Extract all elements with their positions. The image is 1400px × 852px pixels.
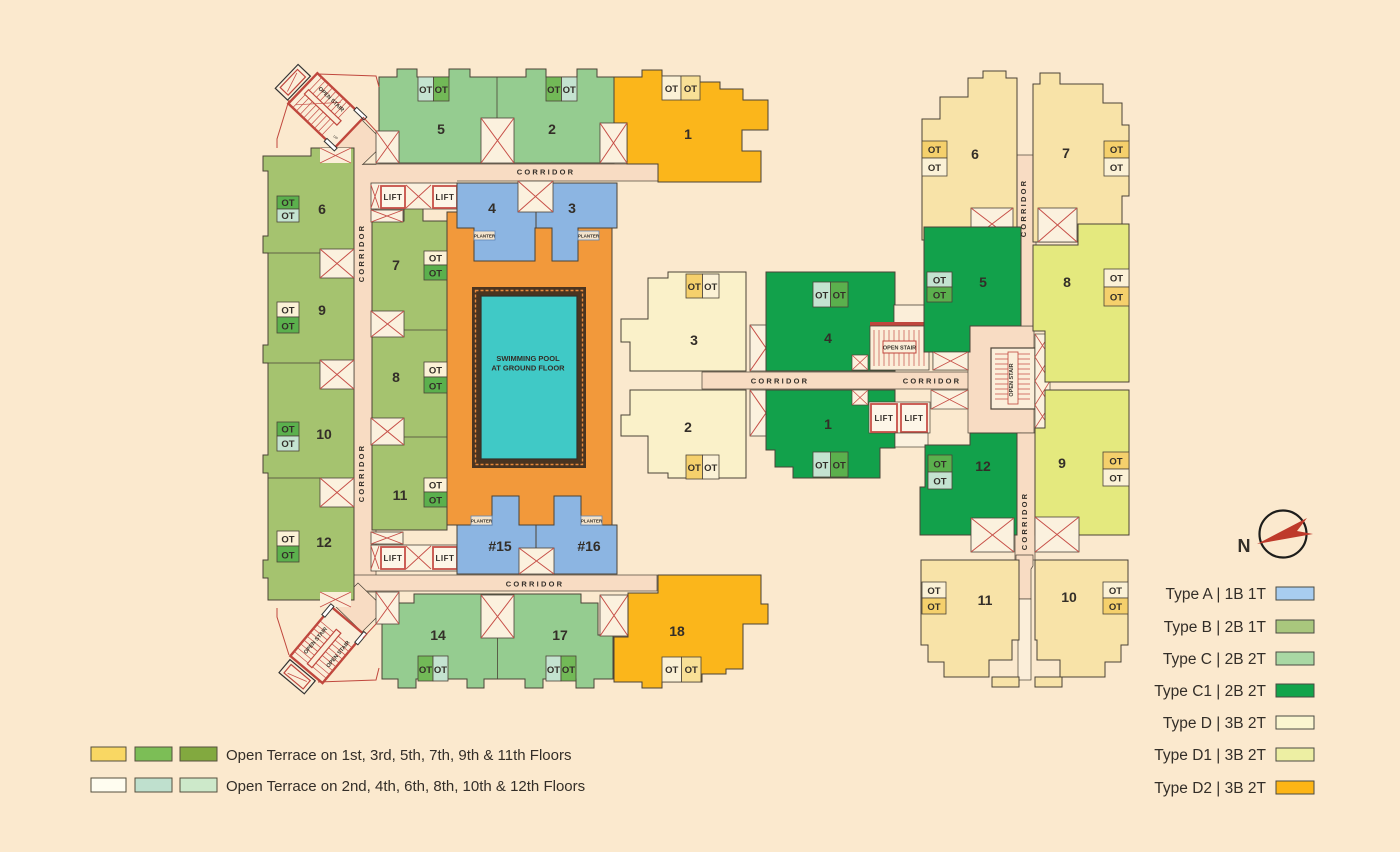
svg-text:OT: OT bbox=[1110, 145, 1123, 156]
svg-text:OT: OT bbox=[562, 665, 575, 676]
svg-text:LIFT: LIFT bbox=[436, 193, 455, 202]
svg-text:6: 6 bbox=[971, 146, 979, 162]
svg-text:OT: OT bbox=[435, 85, 448, 96]
svg-text:OT: OT bbox=[281, 322, 294, 333]
svg-text:PLANTER: PLANTER bbox=[471, 519, 493, 524]
svg-text:PLANTER: PLANTER bbox=[578, 234, 600, 239]
svg-text:Type D1 | 3B 2T: Type D1 | 3B 2T bbox=[1154, 747, 1266, 764]
svg-text:OT: OT bbox=[928, 163, 941, 174]
svg-text:8: 8 bbox=[1063, 274, 1071, 290]
svg-text:OT: OT bbox=[927, 586, 940, 597]
svg-text:18: 18 bbox=[669, 623, 685, 639]
svg-text:Type B | 2B 1T: Type B | 2B 1T bbox=[1164, 619, 1267, 636]
svg-text:OT: OT bbox=[815, 291, 828, 302]
svg-text:Type A | 1B 1T: Type A | 1B 1T bbox=[1165, 586, 1266, 603]
svg-text:OT: OT bbox=[1110, 163, 1123, 174]
svg-text:OT: OT bbox=[704, 463, 717, 474]
svg-text:5: 5 bbox=[979, 274, 987, 290]
svg-text:OT: OT bbox=[933, 460, 946, 471]
svg-text:AT GROUND FLOOR: AT GROUND FLOOR bbox=[491, 364, 565, 373]
svg-text:Open Terrace on 2nd, 4th, 6th,: Open Terrace on 2nd, 4th, 6th, 8th, 10th… bbox=[226, 778, 585, 795]
svg-text:OT: OT bbox=[281, 439, 294, 450]
svg-text:OT: OT bbox=[1109, 457, 1122, 468]
svg-text:#16: #16 bbox=[577, 538, 601, 554]
svg-text:CORRIDOR: CORRIDOR bbox=[903, 377, 961, 386]
svg-text:OT: OT bbox=[419, 665, 432, 676]
svg-text:9: 9 bbox=[1058, 455, 1066, 471]
svg-text:OT: OT bbox=[429, 382, 442, 393]
svg-text:OT: OT bbox=[281, 211, 294, 222]
svg-text:OT: OT bbox=[684, 84, 697, 95]
svg-text:2: 2 bbox=[548, 121, 556, 137]
svg-text:CORRIDOR: CORRIDOR bbox=[357, 224, 366, 282]
svg-text:OT: OT bbox=[419, 85, 432, 96]
svg-text:CORRIDOR: CORRIDOR bbox=[357, 444, 366, 502]
svg-text:OT: OT bbox=[1109, 474, 1122, 485]
svg-text:4: 4 bbox=[824, 330, 832, 346]
svg-text:OPEN STAIR: OPEN STAIR bbox=[1009, 363, 1015, 396]
svg-text:OT: OT bbox=[928, 145, 941, 156]
svg-text:OT: OT bbox=[704, 282, 717, 293]
svg-text:CORRIDOR: CORRIDOR bbox=[1019, 179, 1028, 237]
svg-text:CORRIDOR: CORRIDOR bbox=[751, 377, 809, 386]
svg-text:OT: OT bbox=[688, 282, 701, 293]
svg-text:Type C | 2B 2T: Type C | 2B 2T bbox=[1163, 651, 1267, 668]
svg-text:LIFT: LIFT bbox=[384, 554, 403, 563]
svg-text:OT: OT bbox=[281, 306, 294, 317]
svg-text:OT: OT bbox=[281, 535, 294, 546]
svg-text:8: 8 bbox=[392, 369, 400, 385]
svg-text:Type D2 | 3B 2T: Type D2 | 3B 2T bbox=[1154, 780, 1266, 797]
svg-text:Open Terrace on 1st, 3rd, 5th,: Open Terrace on 1st, 3rd, 5th, 7th, 9th … bbox=[226, 747, 571, 764]
svg-text:OT: OT bbox=[665, 665, 678, 676]
svg-text:OT: OT bbox=[933, 477, 946, 488]
svg-text:5: 5 bbox=[437, 121, 445, 137]
svg-text:10: 10 bbox=[1061, 589, 1077, 605]
svg-text:LIFT: LIFT bbox=[436, 554, 455, 563]
svg-text:12: 12 bbox=[316, 534, 332, 550]
svg-text:4: 4 bbox=[488, 200, 496, 216]
svg-text:#15: #15 bbox=[488, 538, 512, 554]
svg-text:N: N bbox=[1238, 536, 1251, 556]
svg-text:LIFT: LIFT bbox=[384, 193, 403, 202]
svg-text:CORRIDOR: CORRIDOR bbox=[517, 168, 575, 177]
svg-text:1: 1 bbox=[824, 416, 832, 432]
svg-text:SWIMMING POOL: SWIMMING POOL bbox=[496, 354, 560, 363]
svg-text:OT: OT bbox=[281, 198, 294, 209]
svg-text:17: 17 bbox=[552, 627, 568, 643]
svg-text:OT: OT bbox=[688, 463, 701, 474]
svg-text:PLANTER: PLANTER bbox=[474, 234, 496, 239]
svg-text:11: 11 bbox=[393, 487, 408, 503]
svg-text:OT: OT bbox=[281, 551, 294, 562]
svg-text:7: 7 bbox=[392, 257, 400, 273]
svg-text:OT: OT bbox=[429, 366, 442, 377]
svg-text:OT: OT bbox=[1109, 586, 1122, 597]
svg-text:CORRIDOR: CORRIDOR bbox=[1020, 492, 1029, 550]
svg-text:14: 14 bbox=[430, 627, 446, 643]
svg-text:OT: OT bbox=[563, 85, 576, 96]
svg-text:OT: OT bbox=[429, 254, 442, 265]
svg-text:11: 11 bbox=[978, 592, 993, 608]
svg-text:10: 10 bbox=[316, 426, 332, 442]
svg-text:OT: OT bbox=[833, 461, 846, 472]
svg-text:9: 9 bbox=[318, 302, 326, 318]
svg-text:OT: OT bbox=[429, 481, 442, 492]
svg-text:OT: OT bbox=[833, 291, 846, 302]
svg-text:OT: OT bbox=[1110, 274, 1123, 285]
svg-text:OT: OT bbox=[1110, 293, 1123, 304]
svg-text:12: 12 bbox=[975, 458, 991, 474]
svg-text:CORRIDOR: CORRIDOR bbox=[506, 580, 564, 589]
svg-text:LIFT: LIFT bbox=[905, 414, 924, 423]
svg-text:OT: OT bbox=[281, 425, 294, 436]
svg-text:3: 3 bbox=[568, 200, 576, 216]
svg-text:OT: OT bbox=[665, 84, 678, 95]
svg-text:OT: OT bbox=[685, 665, 698, 676]
svg-text:Type C1 | 2B 2T: Type C1 | 2B 2T bbox=[1154, 683, 1266, 700]
svg-text:OT: OT bbox=[547, 665, 560, 676]
svg-text:7: 7 bbox=[1062, 145, 1070, 161]
svg-text:Type D | 3B 2T: Type D | 3B 2T bbox=[1163, 715, 1267, 732]
svg-text:LIFT: LIFT bbox=[875, 414, 894, 423]
svg-text:6: 6 bbox=[318, 201, 326, 217]
svg-text:OT: OT bbox=[1109, 602, 1122, 613]
svg-text:OT: OT bbox=[933, 291, 946, 302]
svg-text:1: 1 bbox=[684, 126, 692, 142]
svg-text:PLANTER: PLANTER bbox=[581, 519, 603, 524]
svg-text:OT: OT bbox=[429, 269, 442, 280]
svg-text:OT: OT bbox=[927, 602, 940, 613]
svg-text:2: 2 bbox=[684, 419, 692, 435]
svg-text:OT: OT bbox=[815, 461, 828, 472]
svg-text:OT: OT bbox=[933, 276, 946, 287]
svg-text:OT: OT bbox=[429, 496, 442, 507]
svg-text:3: 3 bbox=[690, 332, 698, 348]
svg-text:OPEN STAIR: OPEN STAIR bbox=[883, 346, 916, 352]
svg-text:OT: OT bbox=[547, 85, 560, 96]
svg-text:OT: OT bbox=[434, 665, 447, 676]
